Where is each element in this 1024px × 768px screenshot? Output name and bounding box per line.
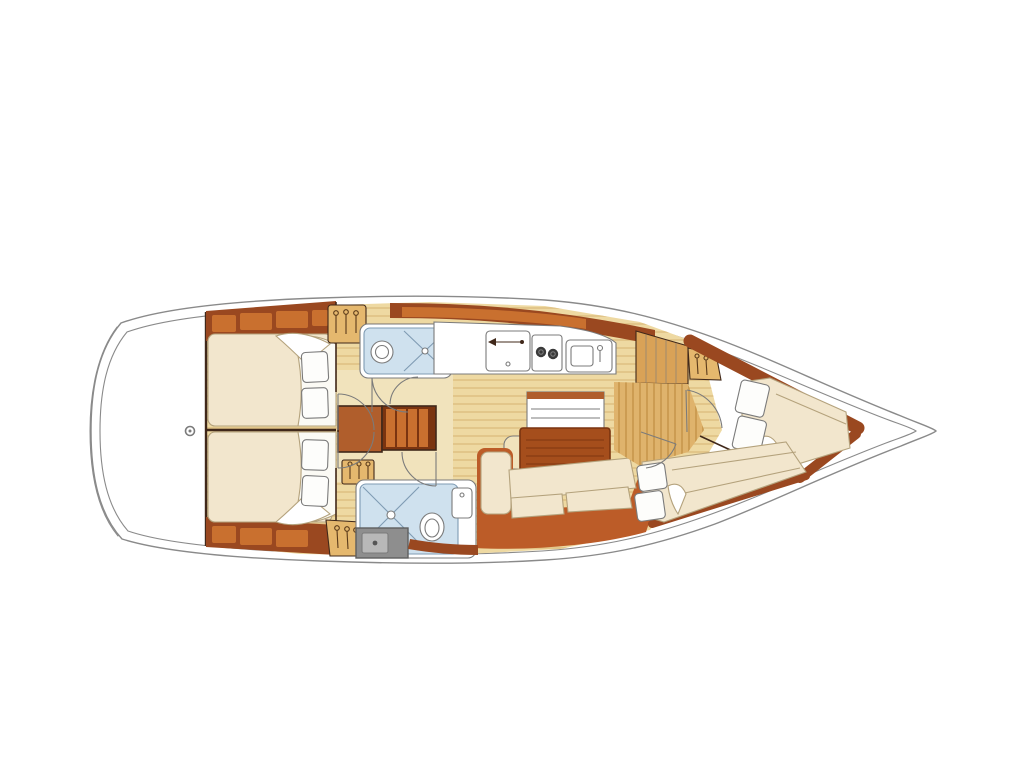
pillow xyxy=(301,440,328,471)
galley-sink xyxy=(566,340,612,372)
shower-drain-icon xyxy=(387,511,395,519)
cockpit-stern xyxy=(186,427,195,436)
aft-cabin-port xyxy=(206,301,336,426)
toilet-icon xyxy=(371,341,393,363)
galley-fridge xyxy=(486,331,530,371)
step xyxy=(386,409,395,447)
galley-stove xyxy=(532,335,562,371)
locker xyxy=(212,315,236,332)
step xyxy=(397,409,406,447)
yacht-floor-plan-page xyxy=(0,0,1024,768)
pillow xyxy=(301,388,328,419)
pedestal-dot xyxy=(189,430,192,433)
locker xyxy=(212,526,236,543)
shower-drain-icon xyxy=(422,348,428,354)
hull-sketch-line-stern xyxy=(90,327,118,536)
settee-cushion xyxy=(481,452,511,514)
step xyxy=(419,409,428,447)
locker xyxy=(276,311,308,328)
settee-seat-cushion xyxy=(511,494,564,518)
engine-box xyxy=(338,406,382,452)
step xyxy=(408,409,417,447)
locker xyxy=(240,313,272,330)
locker xyxy=(312,310,328,326)
pillow xyxy=(301,351,329,382)
pillow xyxy=(301,475,329,506)
locker xyxy=(276,530,308,547)
companionway xyxy=(338,406,436,452)
table-leaf-edge xyxy=(527,392,604,399)
shower-tray xyxy=(356,528,408,558)
locker xyxy=(240,528,272,545)
yacht-floor-plan-diagram xyxy=(0,0,1024,768)
pillow xyxy=(634,490,666,522)
